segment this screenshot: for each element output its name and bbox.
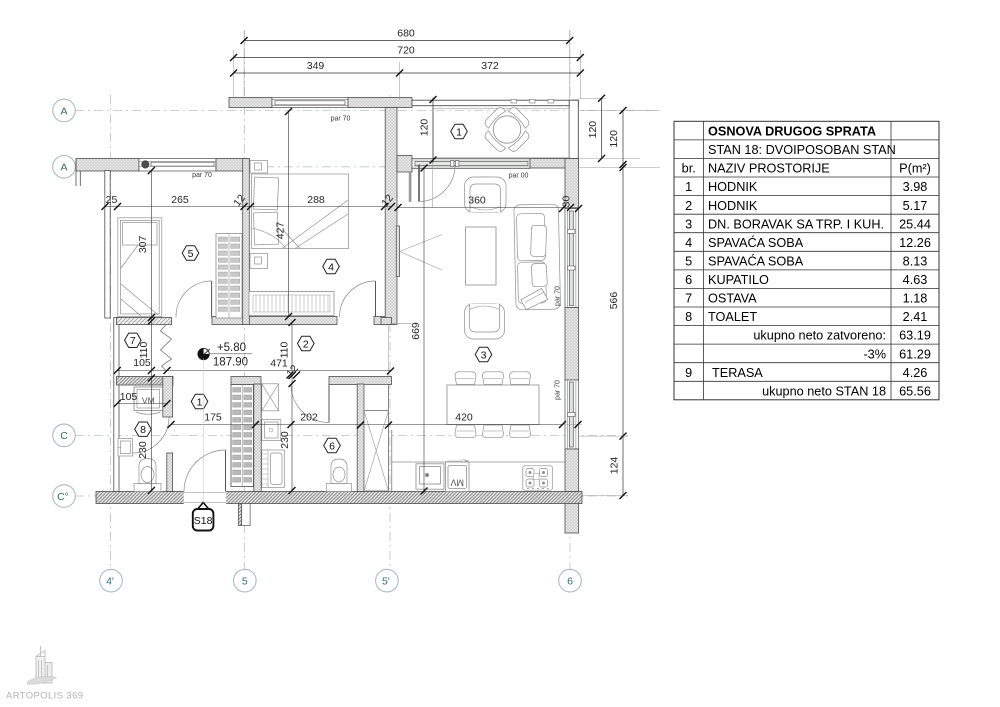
svg-text:DN. BORAVAK SA TRP. I KUH.: DN. BORAVAK SA TRP. I KUH.: [708, 217, 884, 231]
svg-text:680: 680: [397, 28, 415, 40]
svg-text:OSTAVA: OSTAVA: [708, 292, 757, 306]
svg-text:124: 124: [609, 457, 621, 475]
svg-text:471: 471: [270, 358, 288, 370]
svg-text:566: 566: [608, 292, 620, 310]
svg-text:par 70: par 70: [192, 172, 212, 179]
svg-text:STAN 18: DVOIPOSOBAN STAN: STAN 18: DVOIPOSOBAN STAN: [708, 143, 896, 157]
svg-text:4: 4: [328, 261, 334, 273]
svg-text:ukupno neto zatvoreno:: ukupno neto zatvoreno:: [753, 329, 886, 343]
svg-text:120: 120: [418, 119, 430, 137]
svg-text:360: 360: [468, 195, 486, 207]
svg-text:ukupno neto STAN 18: ukupno neto STAN 18: [762, 384, 886, 398]
svg-text:OSNOVA DRUGOG SPRATA: OSNOVA DRUGOG SPRATA: [708, 125, 876, 139]
svg-text:6: 6: [567, 575, 573, 587]
svg-text:3: 3: [685, 217, 692, 231]
svg-text:427: 427: [275, 222, 287, 240]
svg-text:C°: C°: [57, 491, 69, 503]
svg-text:ARTOPOLIS 369: ARTOPOLIS 369: [6, 690, 83, 701]
svg-text:-3%: -3%: [863, 347, 886, 361]
svg-text:5: 5: [685, 255, 692, 269]
svg-text:TOALET: TOALET: [708, 310, 757, 324]
svg-text:par 70: par 70: [555, 380, 562, 400]
svg-text:8: 8: [685, 310, 692, 324]
svg-text:187.90: 187.90: [213, 357, 248, 369]
svg-text:par 70: par 70: [555, 286, 562, 306]
svg-text:120: 120: [587, 121, 599, 139]
svg-text:420: 420: [455, 412, 473, 424]
svg-text:5: 5: [188, 248, 194, 260]
svg-text:3: 3: [481, 349, 487, 361]
svg-text:63.19: 63.19: [899, 329, 931, 343]
svg-text:61.29: 61.29: [899, 347, 931, 361]
svg-text:110: 110: [279, 341, 291, 358]
svg-text:5': 5': [382, 575, 390, 587]
svg-text:VM: VM: [142, 396, 155, 406]
svg-text:4: 4: [685, 236, 692, 250]
svg-text:265: 265: [171, 194, 189, 206]
svg-text:288: 288: [307, 194, 325, 206]
svg-text:par 00: par 00: [509, 173, 529, 180]
svg-text:5: 5: [242, 575, 248, 587]
svg-text:3.98: 3.98: [903, 180, 928, 194]
svg-text:SPAVAĆA SOBA: SPAVAĆA SOBA: [708, 254, 804, 269]
svg-text:4.63: 4.63: [903, 273, 928, 287]
svg-text:HODNIK: HODNIK: [708, 199, 758, 213]
svg-text:6: 6: [685, 273, 692, 287]
svg-text:9: 9: [685, 366, 692, 380]
svg-text:1.18: 1.18: [903, 292, 928, 306]
svg-text:4': 4': [106, 575, 114, 587]
svg-text:A: A: [60, 105, 67, 117]
svg-text:7: 7: [685, 292, 692, 306]
svg-text:12.26: 12.26: [899, 236, 931, 250]
svg-text:175: 175: [204, 412, 222, 424]
svg-text:230: 230: [137, 441, 149, 459]
svg-text:4.26: 4.26: [903, 366, 928, 380]
svg-text:HODNIK: HODNIK: [708, 180, 758, 194]
svg-text:372: 372: [481, 60, 499, 72]
svg-text:65.56: 65.56: [899, 384, 931, 398]
svg-text:110: 110: [138, 341, 150, 358]
svg-text:307: 307: [137, 235, 149, 253]
svg-text:8: 8: [140, 424, 146, 436]
svg-text:669: 669: [410, 322, 422, 340]
svg-text:NAZIV PROSTORIJE: NAZIV PROSTORIJE: [708, 162, 830, 176]
svg-text:par 70: par 70: [331, 116, 351, 123]
svg-text:2.41: 2.41: [903, 310, 928, 324]
svg-text:720: 720: [397, 45, 415, 57]
svg-text:2: 2: [685, 199, 692, 213]
svg-text:KUPATILO: KUPATILO: [708, 273, 769, 287]
svg-text:S18: S18: [194, 515, 213, 527]
svg-text:8.13: 8.13: [903, 255, 928, 269]
svg-text:25.44: 25.44: [899, 217, 931, 231]
svg-text:TERASA: TERASA: [712, 366, 763, 380]
svg-text:30: 30: [561, 196, 573, 208]
svg-text:105: 105: [120, 391, 138, 403]
svg-text:7: 7: [130, 335, 136, 347]
svg-text:1: 1: [197, 396, 203, 408]
svg-text:5.17: 5.17: [903, 199, 928, 213]
svg-text:+5.80: +5.80: [217, 342, 246, 354]
svg-text:105: 105: [133, 357, 151, 369]
svg-text:SPAVAĆA SOBA: SPAVAĆA SOBA: [708, 235, 804, 250]
svg-text:349: 349: [307, 60, 325, 72]
svg-text:25: 25: [106, 194, 118, 206]
svg-text:br.: br.: [682, 162, 696, 176]
svg-text:A: A: [60, 162, 67, 174]
svg-text:120: 120: [608, 130, 620, 148]
svg-text:MV: MV: [450, 478, 464, 488]
svg-text:6: 6: [329, 440, 335, 452]
svg-text:C: C: [60, 430, 68, 442]
svg-text:2: 2: [303, 338, 309, 350]
svg-text:P(m²): P(m²): [899, 162, 931, 176]
svg-text:230: 230: [279, 431, 291, 449]
svg-text:1: 1: [685, 180, 692, 194]
svg-text:202: 202: [300, 412, 318, 424]
svg-text:1: 1: [456, 126, 462, 138]
